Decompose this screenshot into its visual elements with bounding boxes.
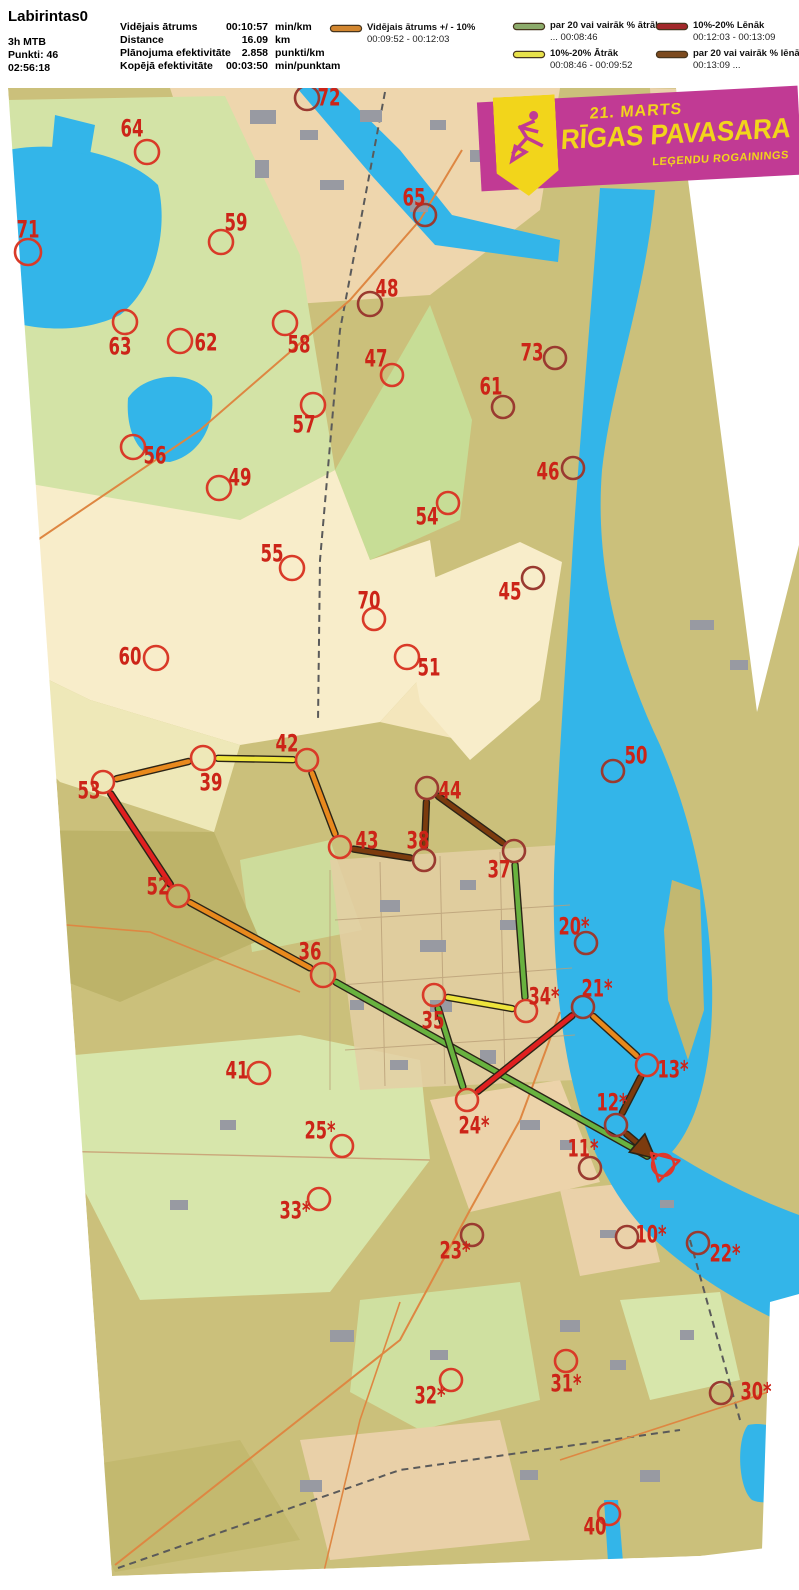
control-label-50: 50 [625, 742, 648, 770]
legend-entry-faster: 10%-20% Ātrāk 00:08:46 - 00:09:52 [514, 48, 632, 71]
stat-unit: min/km [275, 21, 312, 33]
stat-value: 16.09 [218, 34, 268, 46]
stat-row-distance: Distance16.09km [120, 34, 290, 46]
control-label-35: 35 [422, 1007, 445, 1035]
stat-label: Distance [120, 34, 218, 46]
map: 7264716559486362584773576156494654554570… [0, 0, 799, 1590]
control-label-62: 62 [195, 329, 218, 357]
control-label-60: 60 [119, 643, 142, 671]
control-label-48: 48 [376, 275, 399, 303]
legend-range: ... 00:08:46 [550, 32, 660, 43]
legend-entry-slower: 10%-20% Lēnāk 00:12:03 - 00:13:09 [657, 20, 775, 43]
control-label-51: 51 [418, 654, 441, 682]
control-label-37: 37 [488, 856, 511, 884]
legend-swatch-slower-icon [657, 24, 687, 29]
control-label-22: 22* [710, 1240, 741, 1268]
control-label-41: 41 [226, 1057, 249, 1085]
control-label-32: 32* [415, 1382, 446, 1410]
control-label-46: 46 [537, 458, 560, 486]
legend-range: 00:08:46 - 00:09:52 [550, 60, 632, 71]
control-label-38: 38 [407, 827, 430, 855]
control-label-49: 49 [229, 464, 252, 492]
legend-entry-much-slower: par 20 vai vairāk % lēnāk 00:13:09 ... [657, 48, 799, 71]
legend-entry-average: Vidējais ātrums +/ - 10% 00:09:52 - 00:1… [331, 22, 475, 45]
event-banner: 21. MARTS RĪGAS PAVASARA LEĢENDU ROGAINI… [477, 86, 799, 192]
legend-swatch-faster-icon [514, 52, 544, 57]
points-total: Punkti: 46 [8, 49, 58, 61]
stat-unit: km [275, 34, 290, 46]
map-svg: 7264716559486362584773576156494654554570… [0, 0, 799, 1590]
control-label-20: 20* [559, 913, 590, 941]
control-label-70: 70 [358, 587, 381, 615]
control-label-55: 55 [261, 540, 284, 568]
legend-range: 00:12:03 - 00:13:09 [693, 32, 775, 43]
route-leg-39-42 [218, 758, 293, 759]
control-label-64: 64 [121, 115, 144, 143]
control-label-11: 11* [568, 1135, 599, 1163]
control-label-12: 12* [597, 1089, 628, 1117]
control-label-21: 21* [582, 975, 613, 1003]
control-label-13: 13* [658, 1056, 689, 1084]
control-label-10: 10* [636, 1221, 667, 1249]
control-label-39: 39 [200, 769, 223, 797]
page-title: Labirintas0 [8, 8, 88, 25]
legend-label: par 20 vai vairāk % ātrāk [550, 20, 660, 31]
legend-swatch-average-icon [331, 26, 361, 31]
control-label-63: 63 [109, 333, 132, 361]
control-label-33: 33* [280, 1197, 311, 1225]
control-label-57: 57 [293, 411, 316, 439]
stat-unit: punkti/km [275, 47, 325, 59]
control-label-45: 45 [499, 578, 522, 606]
control-label-47: 47 [365, 345, 388, 373]
legend-entry-much-faster: par 20 vai vairāk % ātrāk ... 00:08:46 [514, 20, 660, 43]
control-label-25: 25* [305, 1117, 336, 1145]
control-label-30: 30* [741, 1378, 772, 1406]
stat-value: 00:10:57 [218, 21, 268, 33]
control-label-42: 42 [276, 730, 299, 758]
legend-label: 10%-20% Ātrāk [550, 48, 618, 59]
control-label-40: 40 [584, 1513, 607, 1541]
stat-value: 00:03:50 [218, 60, 268, 72]
legend-label: par 20 vai vairāk % lēnāk [693, 48, 799, 59]
control-label-24: 24* [459, 1112, 490, 1140]
control-label-52: 52 [147, 873, 170, 901]
control-label-71: 71 [17, 216, 40, 244]
control-label-59: 59 [225, 209, 248, 237]
stat-row-total-efficiency: Kopējā efektivitāte00:03:50min/punktam [120, 60, 340, 72]
control-label-44: 44 [439, 777, 462, 805]
control-label-36: 36 [299, 938, 322, 966]
control-label-54: 54 [416, 503, 439, 531]
control-label-58: 58 [288, 331, 311, 359]
control-label-61: 61 [480, 373, 503, 401]
stat-value: 2.858 [218, 47, 268, 59]
control-label-56: 56 [144, 442, 167, 470]
legend-range: 00:09:52 - 00:12:03 [367, 34, 475, 45]
control-label-23: 23* [440, 1237, 471, 1265]
legend-label: Vidējais ātrums +/ - 10% [367, 22, 475, 33]
control-label-73: 73 [521, 339, 544, 367]
cyclist-icon [503, 107, 548, 169]
stat-row-plan-efficiency: Plānojuma efektivitāte2.858punkti/km [120, 47, 325, 59]
stat-unit: min/punktam [275, 60, 340, 72]
stat-label: Vidējais ātrums [120, 21, 218, 33]
stat-label: Kopējā efektivitāte [120, 60, 218, 72]
screen: 7264716559486362584773576156494654554570… [0, 0, 799, 1590]
elapsed-time: 02:56:18 [8, 62, 50, 74]
control-label-53: 53 [78, 777, 101, 805]
class-label: 3h MTB [8, 36, 46, 48]
control-label-31: 31* [551, 1370, 582, 1398]
control-label-34: 34* [529, 983, 560, 1011]
legend-swatch-much-slower-icon [657, 52, 687, 57]
legend-range: 00:13:09 ... [693, 60, 799, 71]
stat-label: Plānojuma efektivitāte [120, 47, 218, 59]
stat-row-speed: Vidējais ātrums00:10:57min/km [120, 21, 312, 33]
control-label-65: 65 [403, 184, 426, 212]
header: Labirintas0 3h MTB Punkti: 46 02:56:18 V… [0, 0, 799, 88]
legend-label: 10%-20% Lēnāk [693, 20, 764, 31]
control-label-43: 43 [356, 827, 379, 855]
legend-swatch-much-faster-icon [514, 24, 544, 29]
